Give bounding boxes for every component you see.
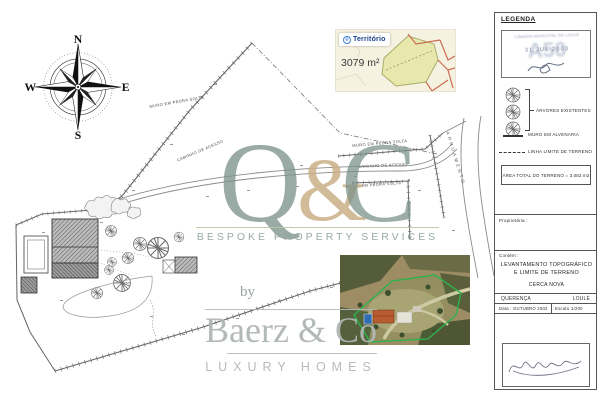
legend-wall-symbol bbox=[503, 135, 523, 137]
stamp-signature-squiggle bbox=[526, 57, 568, 77]
owner-label: Proprietária : bbox=[499, 218, 528, 223]
scale-label: Escala : bbox=[555, 306, 572, 311]
eterritorio-logo-text: Território bbox=[353, 36, 386, 43]
doc-title-line2: E LIMITE DE TERRENO bbox=[495, 270, 598, 276]
legend-divider-1 bbox=[495, 214, 596, 215]
municipal-approval-stamp: CÂMARA MUNICIPAL DE LOULÉ A50 31 JUL 200… bbox=[501, 30, 591, 78]
legend-tree-symbols bbox=[503, 86, 523, 138]
compass-west-label: W bbox=[24, 81, 36, 94]
doc-title-line1: LEVANTAMENTO TOPOGRÁFICO bbox=[495, 262, 598, 268]
legend-title: LEGENDA bbox=[501, 16, 536, 23]
date-label: Data : bbox=[499, 306, 512, 311]
legend-divider-2 bbox=[495, 250, 596, 251]
total-area-box: ÁREA TOTAL DO TERRENO = 3.083 m2 bbox=[501, 165, 591, 185]
plan-label-path-2: CAMINHO DE ACESSO bbox=[358, 161, 408, 169]
legend-divider-5 bbox=[495, 313, 596, 314]
legend-limit-symbol bbox=[499, 152, 525, 153]
legend-item-trees: ÁRVORES EXISTENTES bbox=[536, 108, 591, 113]
parcel-area-label: 3079 m² bbox=[341, 57, 380, 69]
plan-label-wall-1: MURO EM PEDRA SOLTA bbox=[149, 94, 204, 109]
compass-east-label: E bbox=[122, 81, 130, 94]
compass-south-label: S bbox=[75, 129, 82, 141]
compass-north-label: N bbox=[74, 33, 83, 46]
plan-label-path-1: CAMINHO DE ACESSO bbox=[176, 138, 224, 162]
aerial-photo-graphic bbox=[340, 255, 470, 345]
contains-label: Contém : bbox=[499, 253, 519, 258]
total-area-value: ÁREA TOTAL DO TERRENO = 3.083 m2 bbox=[502, 173, 589, 178]
date-value: OUTUBRO 2002 bbox=[513, 306, 548, 311]
signature-box bbox=[502, 343, 590, 387]
legend-divider-3 bbox=[495, 293, 596, 294]
legend-divider-4 bbox=[495, 303, 596, 304]
municipality-label: LOULÉ bbox=[573, 296, 590, 302]
plan-label-street: ARRUAMENTO bbox=[445, 131, 466, 186]
legend-item-wall: MURO EM ALVENARIA bbox=[528, 132, 579, 137]
cadastral-map-inset: e Território 3079 m² bbox=[336, 30, 455, 91]
eterritorio-logo: e Território bbox=[339, 33, 390, 46]
legend-item-limit: LINHA LIMITE DE TERRENO bbox=[528, 149, 592, 154]
parish-label: QUERENÇA bbox=[501, 296, 531, 302]
scale-value: 1/200 bbox=[571, 306, 583, 311]
legend-vertical-divider bbox=[551, 303, 552, 313]
doc-subtitle: CERCA NOVA bbox=[495, 282, 598, 288]
plan-label-wall-2: MURO EM PEDRA SOLTA bbox=[352, 138, 407, 148]
legend-panel: LEGENDA CÂMARA MUNICIPAL DE LOULÉ A50 31… bbox=[494, 12, 597, 390]
legend-bracket bbox=[525, 89, 530, 131]
compass-rose: N E S W bbox=[24, 33, 132, 141]
aerial-photo-inset bbox=[340, 255, 470, 345]
surveyor-signature bbox=[503, 344, 588, 385]
survey-sheet: MURO EM PEDRA SOLTA CAMINHO DE ACESSO MU… bbox=[0, 0, 600, 400]
plan-label-wall-3: MURO EM PEDRA SOLTA bbox=[346, 180, 401, 189]
eterritorio-logo-mark: e bbox=[343, 36, 351, 44]
